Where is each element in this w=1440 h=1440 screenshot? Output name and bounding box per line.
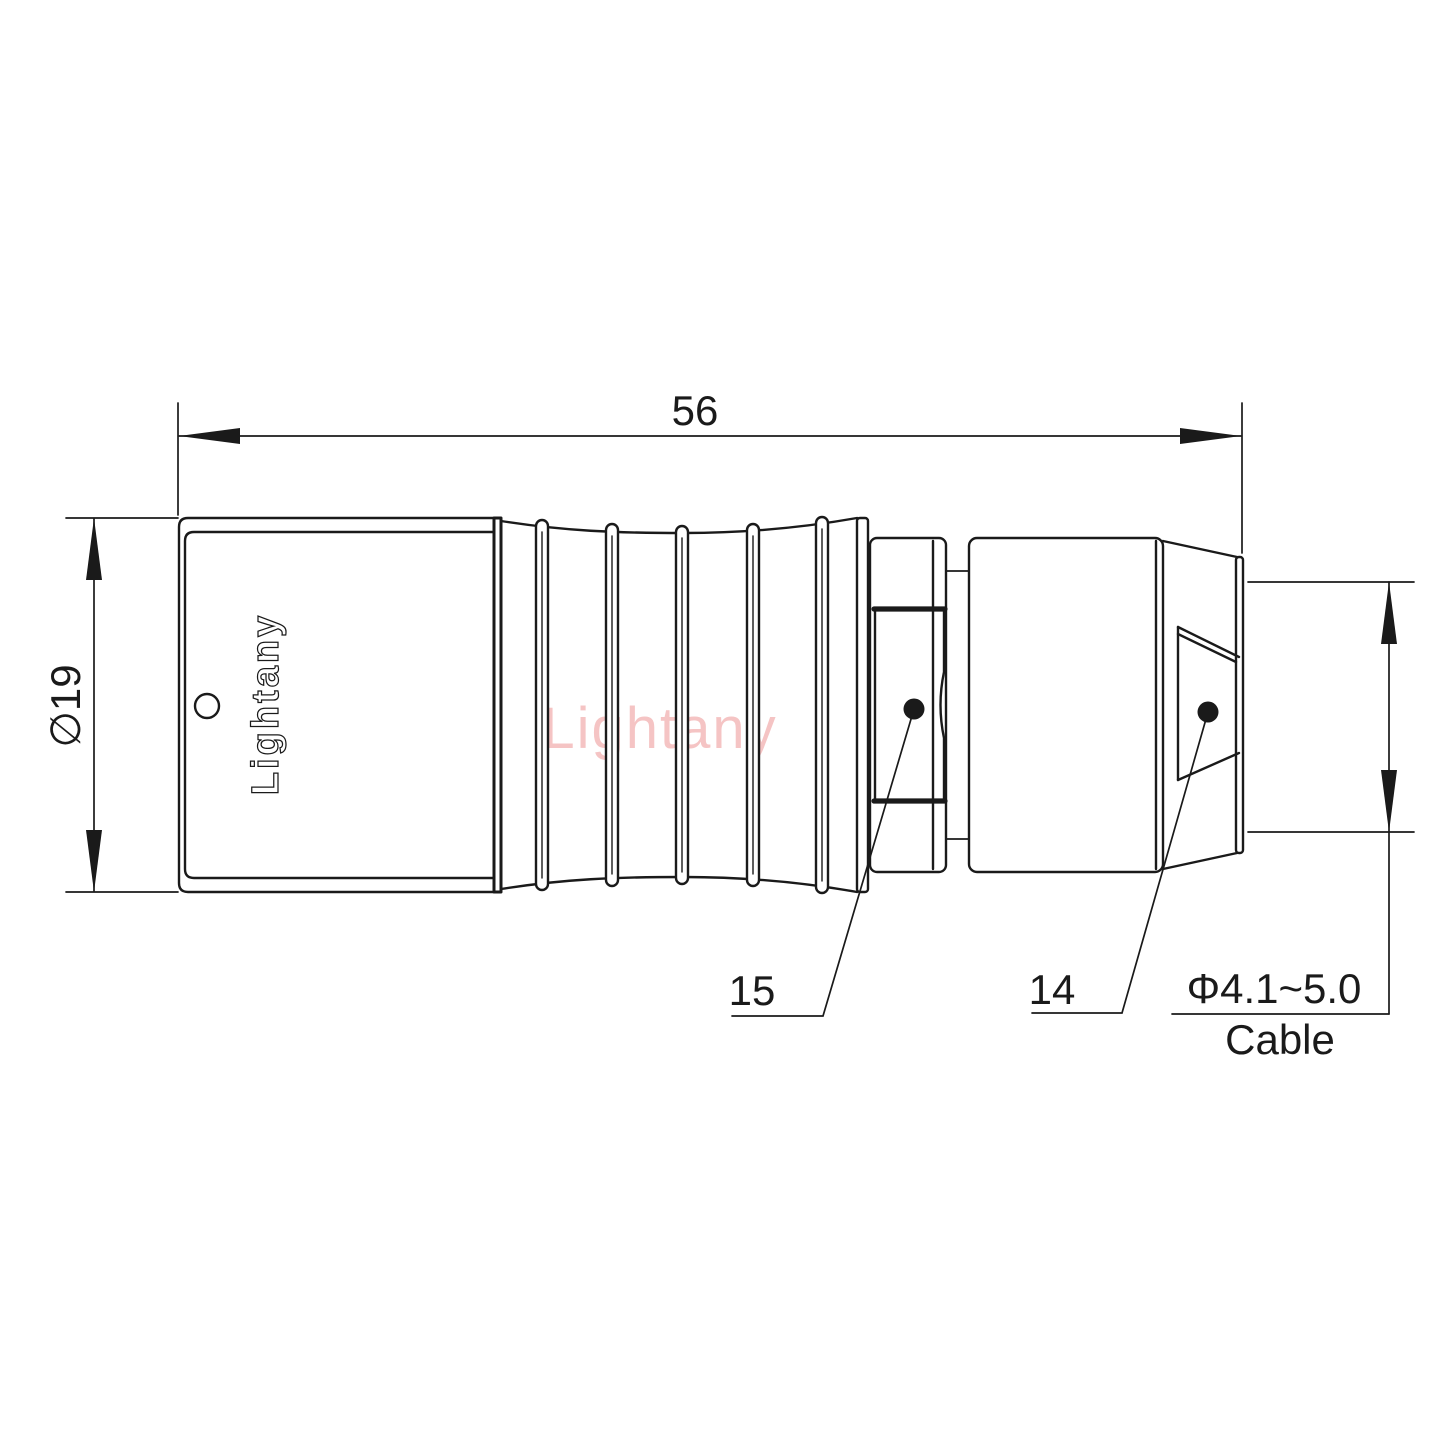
drawing-canvas: Lightany Lightany (0, 0, 1440, 1440)
neck-step-lines (946, 571, 969, 839)
boot-bottom-taper (1163, 853, 1237, 869)
boot-top-taper (1163, 541, 1237, 557)
dimension-body-diameter: ∅19 (42, 518, 178, 892)
dim-label-cable-caption: Cable (1225, 1016, 1335, 1063)
arrowhead-down (86, 830, 102, 892)
callout-label-15: 15 (729, 967, 776, 1014)
dim-label-cable-range: Φ4.1~5.0 (1187, 965, 1362, 1012)
rear-housing-outline (969, 538, 1163, 872)
arrowhead-right (1180, 428, 1241, 444)
release-hole (195, 694, 219, 718)
leader-dot-15 (904, 699, 925, 720)
rear-housing (969, 538, 1163, 872)
cable-entry-face (1236, 557, 1243, 853)
dim-label-19: ∅19 (42, 664, 89, 747)
boot-flat-top-edge (1178, 627, 1239, 662)
arrowhead-down (1381, 770, 1397, 832)
arrowhead-up (1381, 582, 1397, 644)
leader-dot-14 (1198, 702, 1219, 723)
flats-right-edge-notch (941, 611, 945, 799)
dimension-overall-length: 56 (178, 387, 1242, 553)
sleeve-end-ring (857, 518, 868, 892)
arrowhead-left (179, 428, 240, 444)
front-shell: Lightany (179, 518, 501, 892)
dimension-cable-range: Φ4.1~5.0 Cable (1172, 582, 1414, 1063)
front-shell-inner-outline (185, 532, 495, 878)
body-brand-engraving: Lightany (245, 613, 287, 795)
dim-label-56: 56 (672, 387, 719, 434)
boot-flat-bottom-edge (1178, 753, 1239, 780)
arrowhead-up (86, 518, 102, 580)
front-shell-outer-outline (179, 518, 495, 892)
front-shell-edge-band (494, 518, 501, 892)
connector-technical-drawing: Lightany Lightany (0, 0, 1440, 1440)
watermark: Lightany (542, 696, 777, 761)
callout-label-14: 14 (1029, 966, 1076, 1013)
